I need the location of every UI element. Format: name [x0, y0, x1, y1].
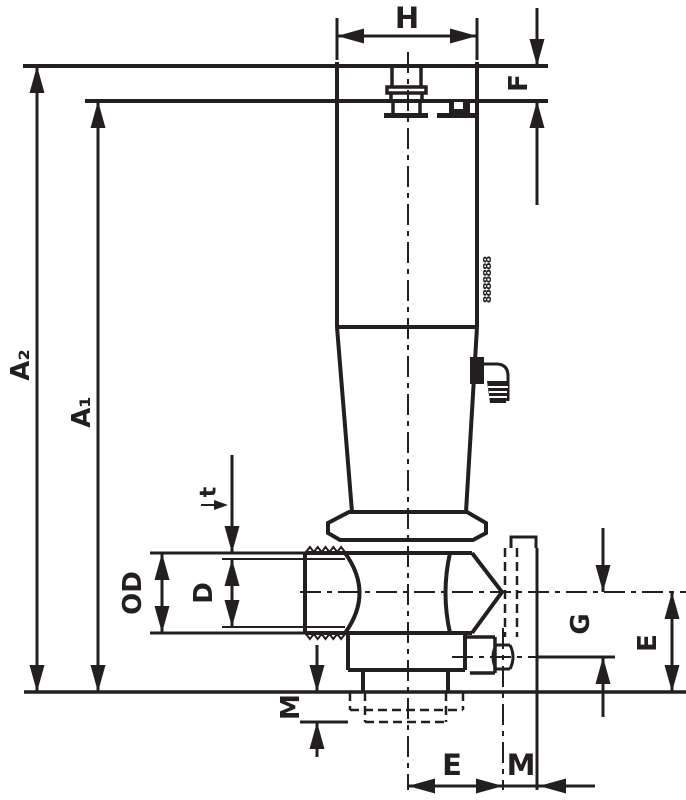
dimension-A2: A₂ — [6, 66, 44, 692]
arrowhead — [665, 665, 680, 692]
lower-steps-outline — [348, 633, 495, 692]
dimension-t: t — [197, 455, 240, 553]
taper-left-edge — [337, 327, 352, 512]
push-button-detail — [384, 66, 475, 118]
arrowhead — [310, 665, 325, 692]
cam-bracket-seat-line — [437, 113, 475, 118]
arrowhead — [450, 29, 477, 44]
hex-right-face-arc — [446, 553, 451, 633]
arrowhead — [91, 101, 106, 128]
arrowhead — [225, 526, 240, 553]
sleeve-marking-text: 8888888 — [481, 256, 494, 303]
dimension-A1: A₁ — [67, 101, 105, 692]
d-label: D — [189, 582, 219, 604]
a2-label: A₂ — [6, 349, 36, 381]
side-cam-pin-detail — [470, 357, 509, 403]
rest-pin-detail — [493, 537, 536, 669]
arrowhead — [30, 665, 45, 692]
technical-drawing-page: 8888888 — [0, 0, 686, 800]
arrowhead — [225, 559, 240, 586]
top-reference-lines — [23, 66, 548, 101]
e-side-label: E — [633, 634, 663, 652]
arrowhead — [665, 592, 680, 619]
arrowhead — [91, 665, 106, 692]
button-seat-line — [384, 113, 428, 118]
f-label: F — [504, 74, 534, 92]
g-label: G — [566, 613, 596, 634]
arrowhead — [539, 779, 566, 794]
arrowhead — [596, 657, 611, 684]
centerlines — [300, 52, 686, 790]
h-label: H — [395, 1, 419, 35]
arrowhead — [530, 101, 545, 128]
dimension-G: G — [537, 528, 615, 717]
dimension-D: D — [189, 559, 306, 627]
cam-bracket-notch — [454, 102, 463, 109]
arrowhead — [30, 66, 45, 93]
arrowhead — [596, 565, 611, 592]
dimension-F: F — [504, 8, 544, 205]
e-bottom-label: E — [442, 748, 462, 782]
t-label: t — [197, 486, 222, 497]
arrowhead — [225, 600, 240, 627]
button-flange — [387, 87, 426, 93]
mounting-surface-and-hidden-pin — [24, 692, 686, 722]
arrowhead — [408, 779, 435, 794]
dimension-E-side: E — [633, 592, 679, 692]
arrowhead — [337, 29, 364, 44]
rest-pin-slot-bracket — [511, 537, 536, 548]
taper-right-edge — [466, 327, 477, 512]
a1-label: A₁ — [67, 396, 97, 428]
m-side-label: M — [276, 694, 306, 720]
od-label: OD — [118, 571, 148, 615]
indexing-plunger-dimension-drawing: 8888888 — [0, 0, 686, 800]
arrowhead — [310, 722, 325, 749]
arrowhead — [155, 553, 170, 580]
m-bottom-label: M — [507, 748, 536, 782]
cam-pin-bar — [470, 357, 484, 384]
arrowhead — [476, 779, 503, 794]
dimension-H: H — [337, 1, 477, 60]
arrowhead — [530, 39, 545, 66]
t-leader-arrowhead — [214, 500, 228, 510]
arrowhead — [155, 606, 170, 633]
dimension-M-side: M — [276, 645, 348, 757]
